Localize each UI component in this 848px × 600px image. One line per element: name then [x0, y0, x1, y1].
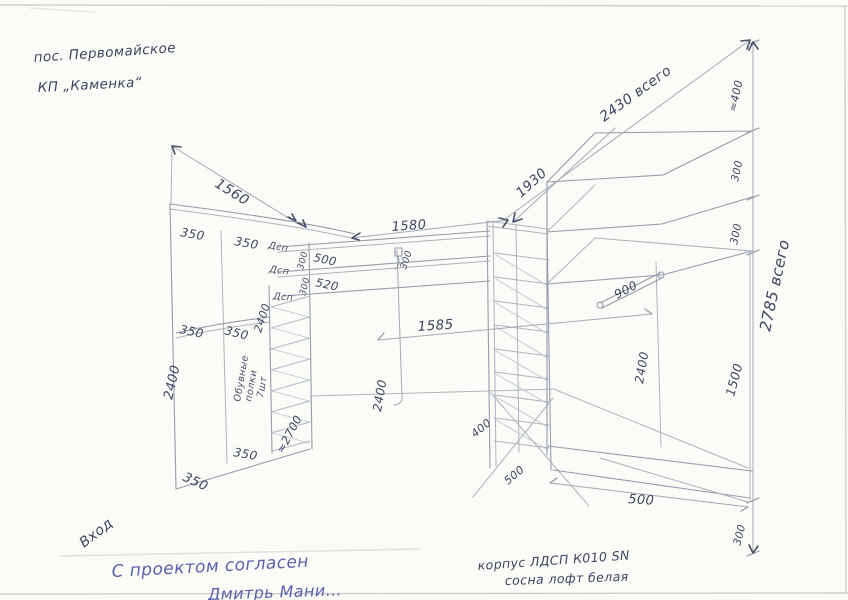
dim-1500-right: 1500 — [722, 362, 745, 398]
dim-2430-total: 2430 всего — [597, 63, 675, 126]
dim-300-right-a: 300 — [729, 159, 745, 182]
dim-2400-right: 2400 — [632, 350, 651, 384]
dim-350-mid-b: 350 — [223, 323, 250, 342]
dim-300-rod: 300 — [398, 249, 414, 271]
wardrobe-sketch-drawing: пос. Первомайское КП „Каменка“ 1560 350 … — [0, 0, 848, 600]
dim-1580: 1580 — [391, 218, 427, 235]
shoe-note-line3: 7шт — [255, 375, 270, 398]
dim-500-shelf: 500 — [312, 250, 338, 269]
dim-2785-total: 2785 всего — [756, 238, 793, 333]
approval-signature: С проектом согласен Дмитрь Мани… — [111, 552, 342, 600]
dim-500-base: 500 — [628, 492, 655, 509]
scanned-sketch-page: пос. Первомайское КП „Каменка“ 1560 350 … — [0, 0, 848, 600]
dim-1585: 1585 — [417, 317, 454, 335]
dim-350-bottom-b: 350 — [232, 445, 258, 463]
entrance-label: Вход — [77, 515, 117, 551]
dim-350-top-b: 350 — [233, 234, 259, 252]
material-note: корпус ЛДСП К010 SN сосна лофт белая — [477, 547, 630, 588]
dim-1930: 1930 — [513, 165, 550, 201]
approval-line1: С проектом согласен — [111, 552, 309, 582]
dim-520-shelf: 520 — [314, 275, 340, 294]
panel-label-dsp-3: Дсп — [272, 291, 294, 304]
shoe-shelves-note: Обувные полки 7шт — [232, 354, 273, 406]
panel-label-dsp-2: Дсп — [268, 264, 290, 278]
location-line1: пос. Первомайское — [33, 40, 176, 66]
panel-label-dsp-1: Дсп — [266, 240, 289, 254]
dim-500-column: 500 — [502, 463, 527, 487]
material-line2: сосна лофт белая — [505, 569, 629, 588]
dim-300-gap-a: 300 — [296, 250, 310, 270]
dim-350-top-a: 350 — [179, 225, 205, 243]
dim-400-top: ≈400 — [726, 79, 745, 113]
handwritten-labels: пос. Первомайское КП „Каменка“ 1560 350 … — [33, 40, 793, 551]
dim-2400-left: 2400 — [161, 364, 183, 401]
dim-2400-center: 2400 — [370, 378, 389, 412]
location-line2: КП „Каменка“ — [37, 75, 143, 96]
center-shelf-column — [473, 221, 589, 506]
dim-1560: 1560 — [212, 176, 252, 209]
right-cabinet-outline — [547, 131, 752, 502]
dim-2700: ≈2700 — [273, 413, 305, 456]
dim-900-rod: 900 — [612, 278, 640, 302]
approval-line2-signature: Дмитрь Мани… — [206, 580, 342, 600]
scan-edge-artifacts — [0, 5, 848, 594]
dim-300-plinth: 300 — [731, 523, 748, 547]
dim-300-right-b: 300 — [728, 222, 744, 245]
dim-350-bottom-a: 350 — [180, 470, 210, 495]
dim-350-mid-a: 350 — [178, 322, 204, 341]
